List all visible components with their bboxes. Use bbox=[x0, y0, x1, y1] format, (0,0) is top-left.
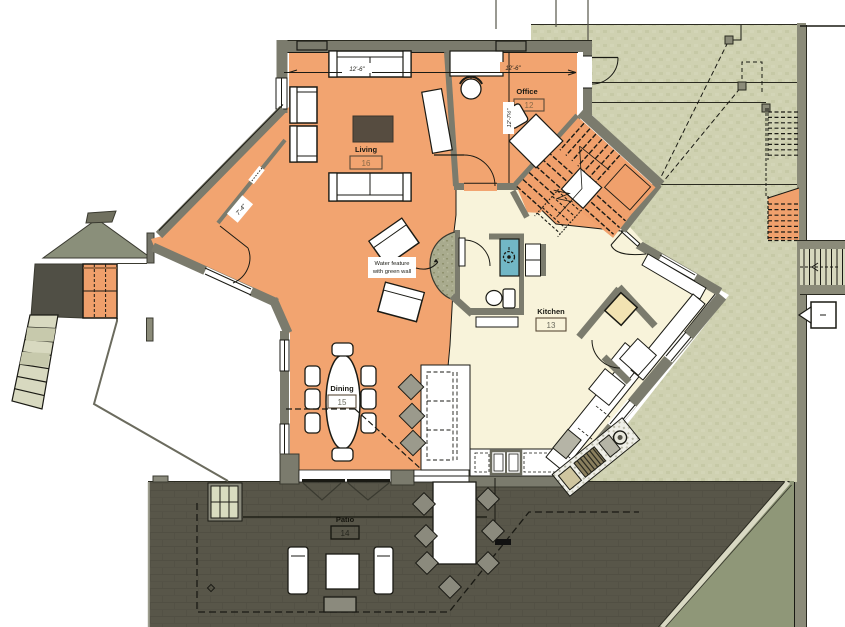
svg-text:with green wall: with green wall bbox=[372, 269, 411, 275]
svg-text:12'-6": 12'-6" bbox=[505, 66, 521, 72]
svg-text:13: 13 bbox=[547, 321, 556, 330]
svg-text:15: 15 bbox=[338, 398, 347, 407]
svg-text:12: 12 bbox=[525, 101, 534, 110]
svg-text:12'-6": 12'-6" bbox=[349, 67, 365, 73]
svg-text:Office: Office bbox=[516, 87, 537, 96]
svg-text:Patio: Patio bbox=[336, 515, 355, 524]
svg-text:Water feature: Water feature bbox=[375, 261, 410, 267]
svg-text:14: 14 bbox=[341, 529, 350, 538]
svg-text:Kitchen: Kitchen bbox=[537, 307, 565, 316]
svg-text:Living: Living bbox=[355, 145, 378, 154]
svg-text:Dining: Dining bbox=[330, 384, 354, 393]
svg-text:16: 16 bbox=[362, 159, 371, 168]
svg-text:12'-7½": 12'-7½" bbox=[506, 108, 513, 128]
